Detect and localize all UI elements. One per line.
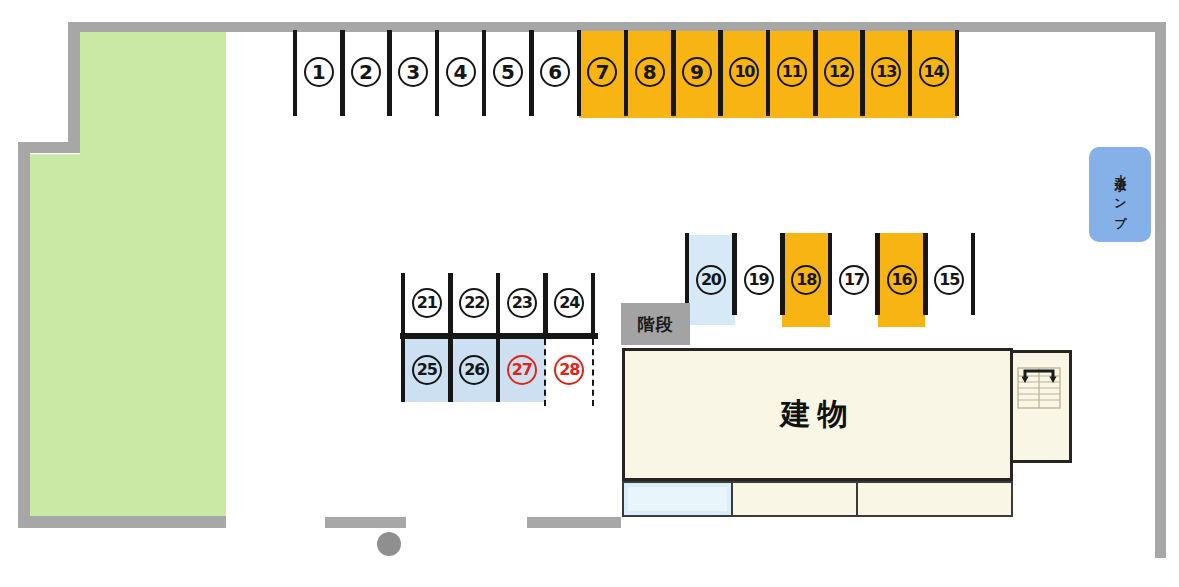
stall-divider <box>923 233 928 315</box>
parking-row-top: 1234567891011121314 <box>295 30 958 118</box>
stall-divider <box>780 233 785 315</box>
stall-divider <box>529 30 534 116</box>
building-porch <box>622 481 1013 517</box>
stall-divider <box>448 273 453 336</box>
stall-divider <box>766 30 771 116</box>
stall-number-24: 24 <box>554 288 584 318</box>
stall-divider <box>401 273 406 336</box>
parking-lot-map: 1234567891011121314 201918171615 2122232… <box>0 0 1179 587</box>
stall-divider <box>875 233 880 315</box>
stall-divider <box>577 30 582 116</box>
stall-divider <box>624 30 629 116</box>
stall-divider <box>496 339 501 402</box>
wall-bottom-left <box>18 516 226 528</box>
stairs-label: 階段 <box>638 313 674 336</box>
stall-divider <box>671 30 676 116</box>
stall-number-17: 17 <box>839 265 869 295</box>
stall-number-18: 18 <box>791 265 821 295</box>
stall-number-26: 26 <box>459 355 489 385</box>
building-main: 建物 <box>622 348 1013 481</box>
stall-number-16: 16 <box>887 265 917 295</box>
staircase-icon <box>1015 359 1063 411</box>
stall-number-12: 12 <box>824 57 854 87</box>
parking-row-middle: 201918171615 <box>687 233 977 327</box>
building-annex <box>1010 350 1072 463</box>
stall-divider <box>732 233 737 315</box>
stall-number-21: 21 <box>412 288 442 318</box>
stall-number-4: 4 <box>446 57 476 87</box>
stall-number-6: 6 <box>540 57 570 87</box>
stall-divider <box>482 30 487 116</box>
wall-bottom-right <box>527 517 621 528</box>
stall-divider <box>435 30 440 116</box>
wall-bottom-middle <box>325 517 406 528</box>
wall-left-upper <box>68 22 80 152</box>
stall-divider <box>401 339 406 402</box>
wall-left-lower <box>18 142 30 528</box>
stall-divider-dashed <box>592 339 594 406</box>
stairs-label-box: 階段 <box>621 303 690 345</box>
stall-number-15: 15 <box>934 265 964 295</box>
stall-number-22: 22 <box>459 288 489 318</box>
water-pump-box: 水道ポンプ <box>1089 147 1151 242</box>
stall-number-7: 7 <box>587 57 617 87</box>
parking-block-left: 2122232425262728 <box>400 273 600 406</box>
stall-divider <box>543 273 548 336</box>
stall-number-10: 10 <box>729 57 759 87</box>
building-label: 建物 <box>781 394 855 435</box>
stall-number-19: 19 <box>744 265 774 295</box>
stall-number-8: 8 <box>635 57 665 87</box>
porch-cell-middle <box>731 481 858 517</box>
wall-right <box>1155 22 1166 558</box>
porch-cell-blue <box>622 481 733 517</box>
stall-number-9: 9 <box>682 57 712 87</box>
stall-number-13: 13 <box>871 57 901 87</box>
water-pump-label: 水道ポンプ <box>1112 164 1129 225</box>
stall-number-27: 27 <box>507 355 537 385</box>
stall-number-3: 3 <box>398 57 428 87</box>
stall-divider <box>828 233 833 315</box>
porch-cell-blue-inner <box>628 487 727 511</box>
stall-number-23: 23 <box>507 288 537 318</box>
stall-divider <box>813 30 818 116</box>
stall-divider <box>340 30 345 116</box>
stall-divider <box>448 339 453 402</box>
stall-number-5: 5 <box>493 57 523 87</box>
stall-divider <box>387 30 392 116</box>
stall-divider <box>591 273 596 336</box>
stall-number-11: 11 <box>777 57 807 87</box>
stall-divider <box>860 30 865 116</box>
stall-divider-dashed <box>544 339 546 406</box>
stall-divider <box>908 30 913 116</box>
stall-divider <box>971 233 976 315</box>
stall-number-28: 28 <box>554 355 584 385</box>
stall-number-20: 20 <box>696 265 726 295</box>
stall-divider <box>496 273 501 336</box>
stall-number-1: 1 <box>304 57 334 87</box>
porch-cell-right <box>856 481 1013 517</box>
grass-area <box>30 31 226 516</box>
stall-number-25: 25 <box>412 355 442 385</box>
stall-number-2: 2 <box>351 57 381 87</box>
stall-number-14: 14 <box>919 57 949 87</box>
stall-divider <box>955 30 960 116</box>
bollard-circle <box>377 532 401 556</box>
stall-divider <box>293 30 298 116</box>
stall-divider <box>718 30 723 116</box>
